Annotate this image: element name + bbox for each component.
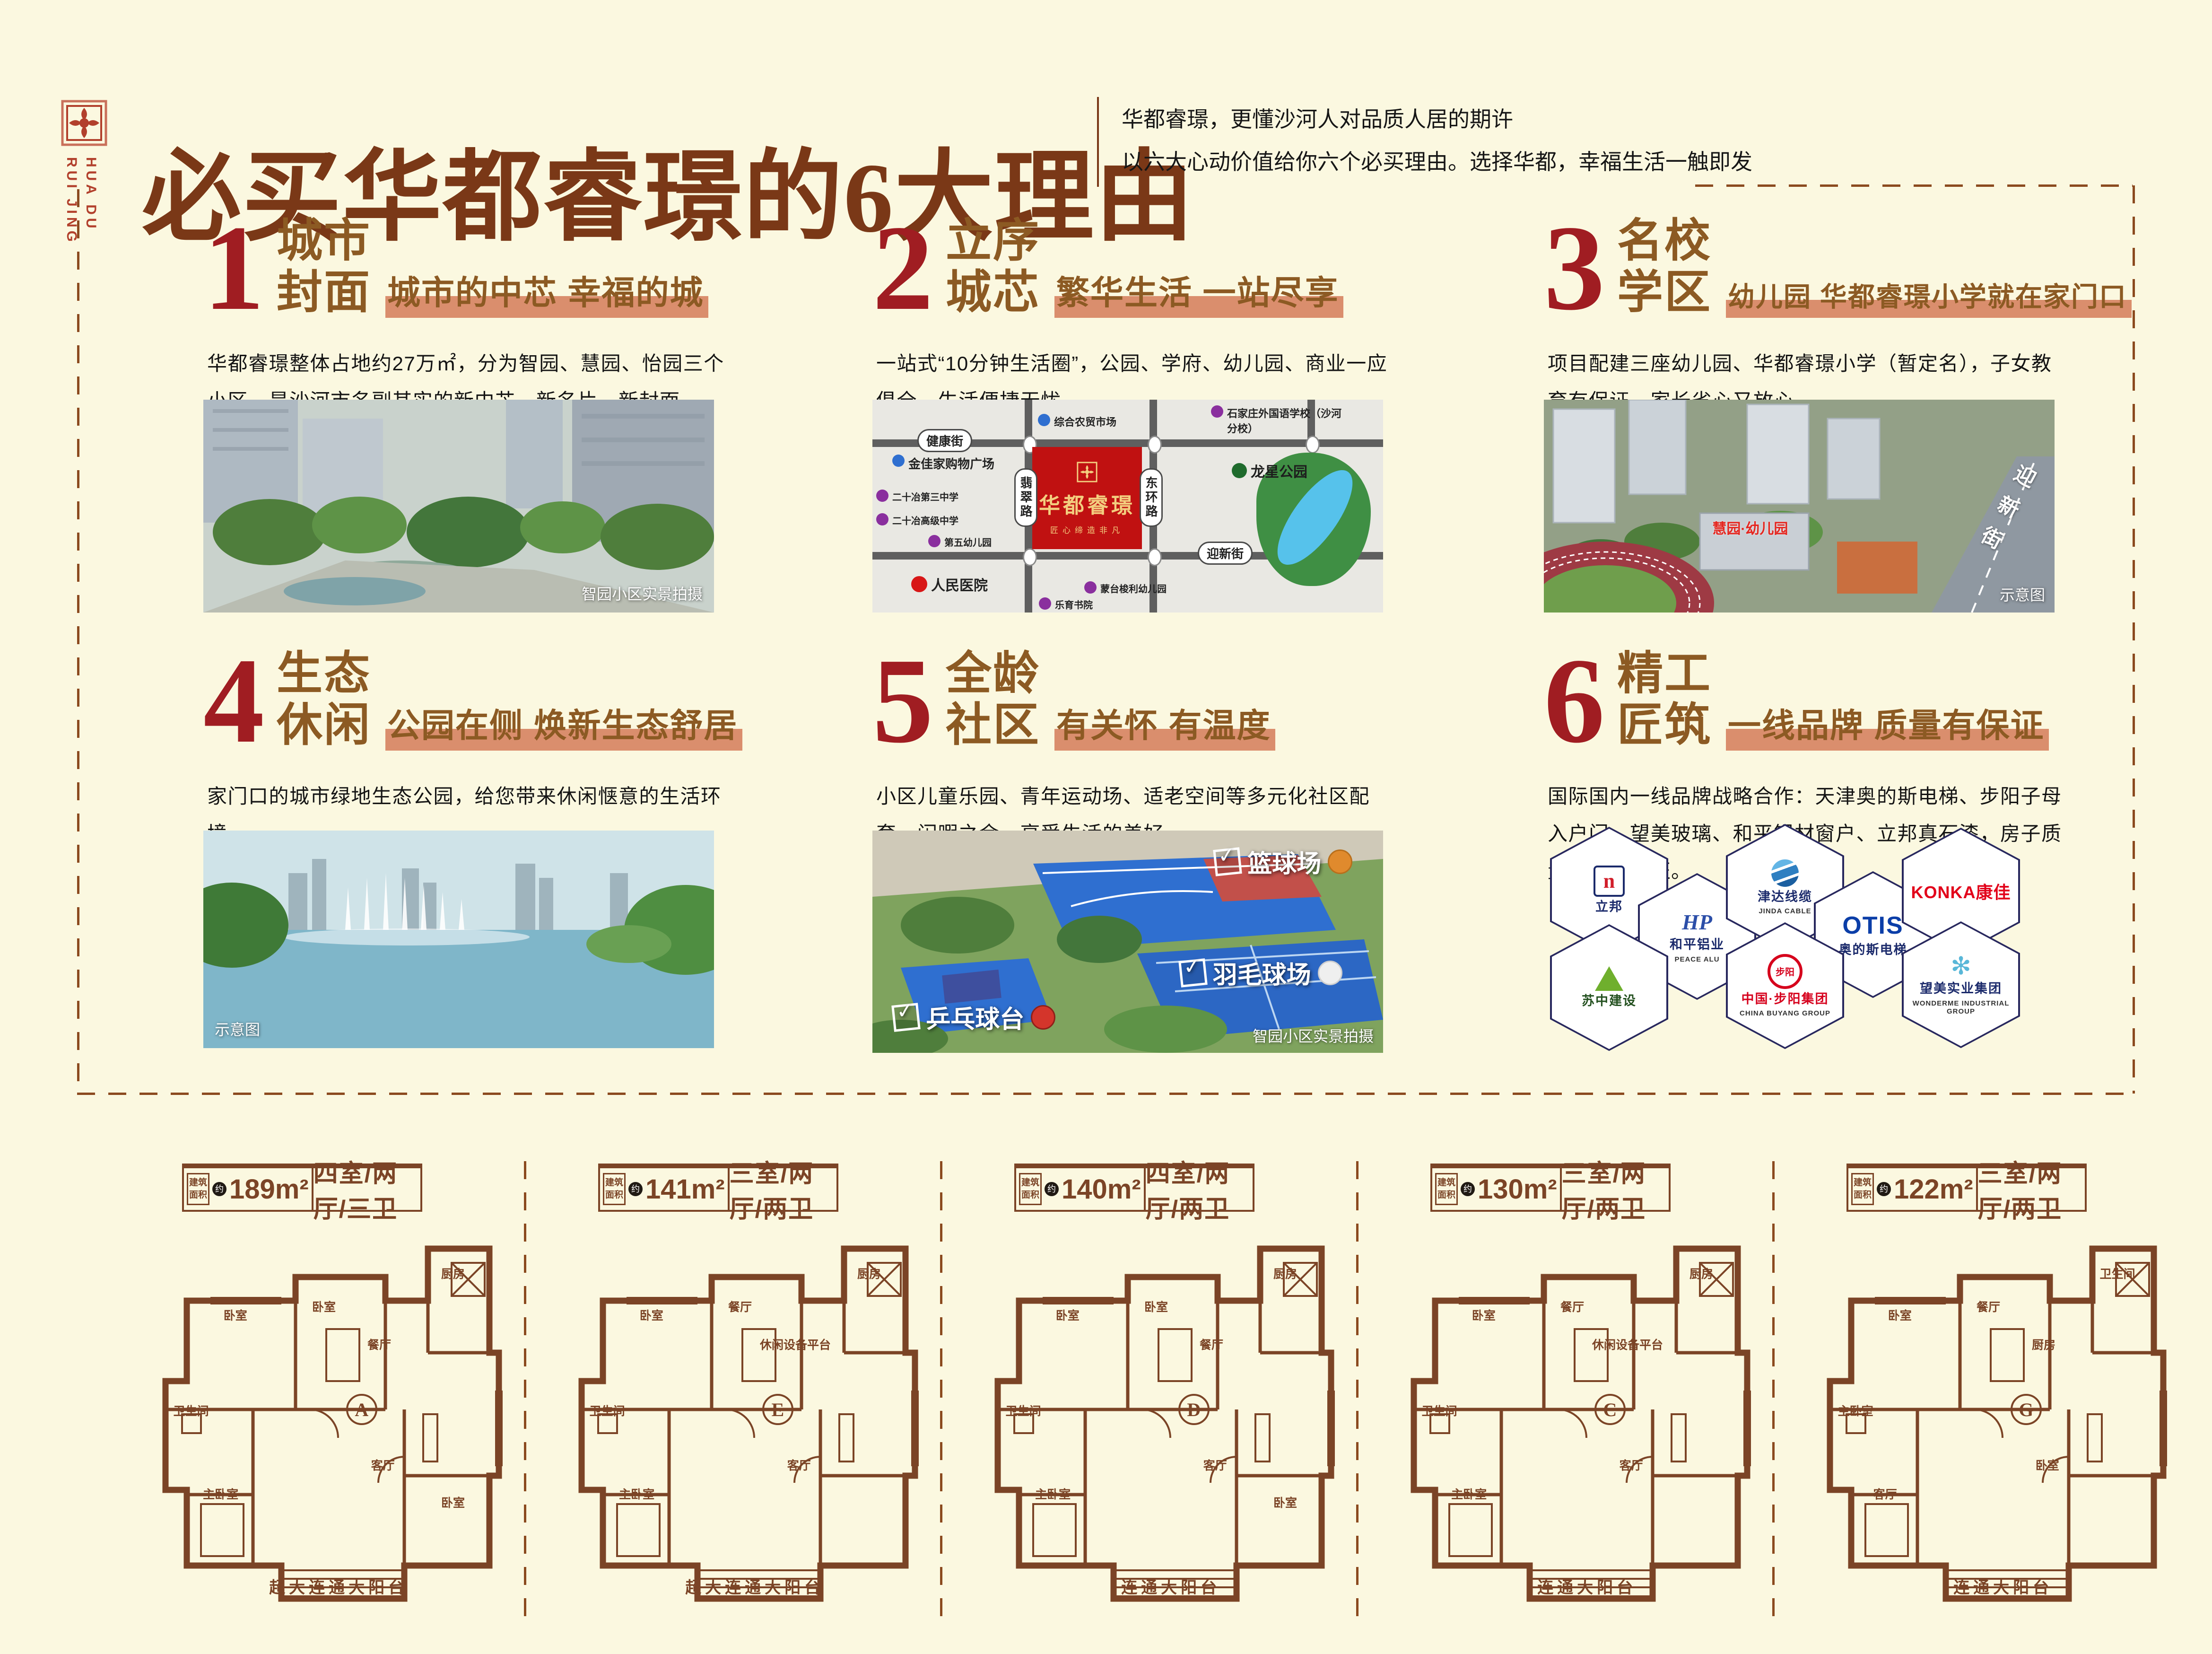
area-badge: 建筑面积 — [1435, 1173, 1458, 1205]
project-emblem-icon — [1076, 461, 1098, 483]
room-label: 餐厅 — [1200, 1336, 1223, 1353]
room-label: 卧室 — [1273, 1494, 1297, 1511]
plan-area: 130m² — [1478, 1173, 1557, 1205]
balcony-label: 连通大阳台 — [1953, 1575, 2053, 1598]
lake-illustration — [203, 831, 714, 1048]
section-heading: 社区 — [946, 700, 1040, 751]
room-label: 卫生间 — [590, 1402, 625, 1419]
plan-letter-badge: C — [1594, 1394, 1626, 1425]
room-label: 卧室 — [312, 1298, 336, 1315]
map-project-name: 华都睿璟 — [1039, 488, 1135, 519]
room-label: 厨房 — [2032, 1336, 2055, 1353]
map-intersection — [1306, 436, 1320, 454]
map-poi: 人民医院 — [911, 574, 988, 595]
plan-area: 122m² — [1894, 1173, 1973, 1205]
brand-buyang: 步阳 中国·步阳集团 CHINA BUYANG GROUP — [1726, 922, 1844, 1049]
poi-icon — [892, 455, 905, 467]
map-poi: 石家庄外国语学校（沙河分校） — [1211, 405, 1343, 436]
street-label-west: 翡翠路 — [1014, 468, 1037, 527]
title-divider — [1097, 97, 1099, 187]
photo-sports-courts: 篮球场 羽毛球场 乒乓球台 智园小区实景拍摄 — [872, 831, 1383, 1053]
street-label-east: 东环路 — [1140, 468, 1163, 527]
pingpong-icon — [1031, 1005, 1055, 1030]
court-label-pingpong: 乒乓球台 — [893, 999, 1055, 1035]
photo-school-aerial: 慧园·幼儿园 迎新街 示意图 — [1544, 400, 2055, 613]
floor-plan-189: 建筑面积 约 189m² 四室/两厅/三卫 卧室卧室餐厅厨房卫生间主卧室客厅卧室… — [135, 1154, 523, 1636]
poi-label: 石家庄外国语学校（沙河分校） — [1227, 405, 1343, 436]
plan-label: 建筑面积 约 140m² 四室/两厅/两卫 — [1014, 1164, 1254, 1212]
map-poi: 综合农贸市场 — [1038, 414, 1116, 429]
subtitle-line2: 以六大心动价值给你六个必买理由。选择华都，幸福生活一触即发 — [1122, 141, 1752, 184]
section-number: 6 — [1544, 651, 1605, 751]
section-tagline: 繁华生活 一站尽享 — [1054, 266, 1343, 318]
brand-suzhong: 苏中建设 — [1550, 924, 1668, 1051]
section-heading: 名校 — [1617, 215, 1712, 267]
poi-icon — [1038, 414, 1050, 426]
section-heading: 休闲 — [277, 700, 371, 751]
section-heading: 城芯 — [946, 267, 1040, 318]
area-badge: 建筑面积 — [1019, 1173, 1042, 1205]
room-label: 卧室 — [1056, 1306, 1080, 1323]
plan-label: 建筑面积 约 141m² 三室/两厅/两卫 — [598, 1164, 838, 1212]
plan-drawing: 卧室卧室餐厅厨房卫生间主卧室客厅卧室 A 超大连通大阳台 — [139, 1211, 508, 1627]
plan-layout: 四室/两厅/三卫 — [314, 1168, 420, 1210]
poi-label: 二十冶高级中学 — [892, 513, 958, 527]
section-number: 5 — [872, 651, 933, 751]
section-heading: 全龄 — [946, 648, 1040, 700]
park-tree-icon — [1232, 463, 1247, 478]
location-map: 华都睿璟 匠心缔造非凡 龙星公园 健康街 翡翠路 东环路 迎新街 综合农贸市场 … — [872, 400, 1383, 613]
room-label: 卧室 — [1888, 1306, 1912, 1323]
plan-layout: 三室/两厅/两卫 — [1562, 1168, 1669, 1210]
subtitle-line1: 华都睿璟，更懂沙河人对品质人居的期许 — [1122, 98, 1752, 141]
kindergarten-label: 慧园·幼儿园 — [1712, 517, 1788, 538]
room-label: 主卧室 — [203, 1485, 238, 1502]
basketball-icon — [1328, 849, 1352, 874]
plan-drawing: 卧室餐厅厨房卫生间主卧室客厅卧室 G 连通大阳台 — [1804, 1211, 2173, 1627]
floor-plan-130: 建筑面积 约 130m² 三室/两厅/两卫 卧室餐厅休闲设备平台厨房卫生间主卧室… — [1383, 1154, 1771, 1636]
checkbox-icon — [891, 1003, 921, 1032]
room-label: 卧室 — [640, 1306, 663, 1323]
plan-layout: 三室/两厅/两卫 — [730, 1168, 836, 1210]
section-tagline: 幼儿园 华都睿璟小学就在家门口 — [1726, 275, 2132, 318]
section-tagline: 城市的中芯 幸福的城 — [385, 266, 708, 318]
poi-label: 二十冶第三中学 — [892, 490, 958, 503]
map-poi: 二十冶第三中学 — [876, 490, 958, 503]
room-label: 卧室 — [441, 1494, 465, 1511]
plan-divider — [940, 1161, 942, 1625]
approx-icon: 约 — [1877, 1182, 1891, 1196]
floor-plan-122: 建筑面积 约 122m² 三室/两厅/两卫 卧室餐厅厨房卫生间主卧室客厅卧室 G… — [1799, 1154, 2187, 1636]
court-label-badminton: 羽毛球场 — [1180, 955, 1342, 990]
balcony-label: 连通大阳台 — [1121, 1575, 1220, 1598]
badminton-icon — [1318, 961, 1342, 985]
aerial-illustration — [1544, 400, 2055, 613]
section-heading: 封面 — [277, 267, 371, 318]
map-park-label: 龙星公园 — [1232, 460, 1307, 481]
room-label: 卫生间 — [1006, 1402, 1041, 1419]
plan-letter-badge: E — [762, 1394, 793, 1425]
dashed-border-right — [2133, 185, 2135, 1094]
room-label: 卧室 — [1472, 1306, 1496, 1323]
section-number: 3 — [1544, 218, 1605, 318]
map-poi: 二十冶高级中学 — [876, 513, 958, 527]
poi-icon — [1084, 581, 1097, 594]
section-number: 4 — [203, 651, 264, 751]
map-poi: 金佳家购物广场 — [892, 455, 994, 472]
checkbox-icon — [1213, 847, 1242, 876]
plan-letter-badge: G — [2011, 1394, 2042, 1425]
photo-caption: 示意图 — [215, 1018, 260, 1040]
courtyard-illustration — [203, 400, 714, 613]
nippon-logo-icon: n — [1594, 866, 1625, 897]
dashed-border-left — [77, 189, 79, 1094]
plan-divider — [1356, 1161, 1359, 1625]
room-label: 主卧室 — [1838, 1402, 1873, 1419]
section-2-city-core: 2 立序城芯 繁华生活 一站尽享 一站式“10分钟生活圈”，公园、学府、幼儿园、… — [872, 215, 1397, 420]
map-project-block: 华都睿璟 匠心缔造非凡 — [1032, 447, 1142, 549]
poi-icon — [1211, 405, 1223, 418]
room-label: 客厅 — [1203, 1456, 1227, 1473]
plan-drawing: 卧室卧室餐厅厨房卫生间主卧室客厅卧室 D 连通大阳台 — [972, 1211, 1341, 1627]
approx-icon: 约 — [1045, 1182, 1059, 1196]
room-label: 厨房 — [441, 1265, 465, 1282]
plan-label: 建筑面积 约 122m² 三室/两厅/两卫 — [1846, 1164, 2087, 1212]
poi-icon — [1039, 597, 1051, 610]
poi-icon — [876, 513, 888, 525]
section-tagline: 有关怀 有温度 — [1054, 699, 1275, 751]
plan-layout: 三室/两厅/两卫 — [1978, 1168, 2085, 1210]
wangmei-logo-icon: ✻ — [1951, 954, 1971, 979]
balcony-label: 超大连通大阳台 — [269, 1575, 408, 1598]
photo-courtyard: 智园小区实景拍摄 — [203, 400, 714, 613]
balcony-label: 超大连通大阳台 — [685, 1575, 824, 1598]
street-label-south: 迎新街 — [1198, 542, 1253, 565]
brand-logo-grid: n 立邦 HP 和平铝业 PEACE ALU 津达线缆 JINDA CABLE … — [1545, 824, 2070, 1054]
photo-park-lake: 示意图 — [203, 831, 714, 1048]
map-intersection — [1148, 548, 1162, 566]
map-project-slogan: 匠心缔造非凡 — [1050, 524, 1124, 535]
jinda-logo-icon — [1771, 859, 1799, 887]
poi-label: 蒙台梭利幼儿园 — [1100, 581, 1167, 595]
section-heading: 学区 — [1617, 267, 1712, 318]
brand-emblem-icon — [61, 99, 108, 147]
photo-caption: 智园小区实景拍摄 — [582, 582, 703, 604]
plan-area: 141m² — [645, 1173, 725, 1205]
section-number: 1 — [203, 218, 264, 318]
area-badge: 建筑面积 — [1851, 1173, 1874, 1205]
street-label-north: 健康街 — [917, 429, 972, 452]
room-label: 客厅 — [371, 1456, 395, 1473]
konka-logo-icon: KONKA康佳 — [1911, 879, 2011, 903]
room-label: 主卧室 — [1035, 1485, 1071, 1502]
map-poi: 第五幼儿园 — [928, 535, 992, 549]
court-label-basketball: 篮球场 — [1214, 844, 1352, 879]
floor-plan-140: 建筑面积 约 140m² 四室/两厅/两卫 卧室卧室餐厅厨房卫生间主卧室客厅卧室… — [967, 1154, 1355, 1636]
dashed-border-top — [1695, 184, 2133, 187]
subtitle: 华都睿璟，更懂沙河人对品质人居的期许 以六大心动价值给你六个必买理由。选择华都，… — [1122, 98, 1752, 183]
plan-layout: 四室/两厅/两卫 — [1146, 1168, 1253, 1210]
section-heading: 城市 — [277, 215, 371, 267]
room-label: 休闲设备平台 — [760, 1336, 831, 1353]
plan-drawing: 卧室餐厅休闲设备平台厨房卫生间主卧室客厅 E 超大连通大阳台 — [556, 1211, 924, 1627]
room-label: 餐厅 — [1560, 1298, 1584, 1315]
map-poi: 乐育书院 — [1039, 597, 1093, 611]
plan-letter-badge: A — [346, 1394, 377, 1425]
poi-label: 第五幼儿园 — [944, 535, 992, 549]
room-label: 卧室 — [2036, 1456, 2059, 1473]
peace-alu-logo-icon: HP — [1682, 910, 1712, 935]
map-intersection — [1148, 436, 1162, 454]
room-label: 客厅 — [787, 1456, 811, 1473]
room-label: 客厅 — [1620, 1456, 1643, 1473]
plan-letter-badge: D — [1178, 1394, 1210, 1425]
poi-label: 人民医院 — [931, 574, 988, 595]
checkbox-icon — [1178, 958, 1208, 988]
floor-plan-141: 建筑面积 约 141m² 三室/两厅/两卫 卧室餐厅休闲设备平台厨房卫生间主卧室… — [551, 1154, 939, 1636]
section-3-school-district: 3 名校学区 幼儿园 华都睿璟小学就在家门口 项目配建三座幼儿园、华都睿璟小学（… — [1544, 215, 2069, 420]
photo-caption: 示意图 — [2000, 583, 2045, 605]
plan-divider — [524, 1161, 526, 1625]
room-label: 卫生间 — [2099, 1265, 2135, 1282]
room-label: 餐厅 — [367, 1336, 391, 1353]
room-label: 卫生间 — [1422, 1402, 1457, 1419]
section-5-community: 5 全龄社区 有关怀 有温度 小区儿童乐园、青年运动场、适老空间等多元化社区配套… — [872, 648, 1397, 853]
poi-icon — [928, 535, 941, 547]
section-heading: 生态 — [277, 648, 371, 700]
area-badge: 建筑面积 — [603, 1173, 626, 1205]
room-label: 餐厅 — [1977, 1298, 2000, 1315]
brand-name-en: HUA DURUI JING — [62, 157, 100, 245]
map-poi: 蒙台梭利幼儿园 — [1084, 581, 1167, 595]
section-heading: 匠筑 — [1617, 700, 1712, 751]
section-heading: 立序 — [946, 215, 1040, 267]
approx-icon: 约 — [212, 1182, 226, 1196]
section-number: 2 — [872, 218, 933, 318]
otis-logo-icon: OTIS — [1842, 911, 1903, 940]
plan-label: 建筑面积 约 189m² 四室/两厅/三卫 — [182, 1164, 422, 1212]
approx-icon: 约 — [1461, 1182, 1475, 1196]
plan-drawing: 卧室餐厅休闲设备平台厨房卫生间主卧室客厅 C 连通大阳台 — [1388, 1211, 1757, 1627]
poster: HUA DURUI JING 必买华都睿璟的6大理由 华都睿璟，更懂沙河人对品质… — [0, 0, 2212, 1654]
section-tagline: 公园在侧 焕新生态舒居 — [385, 699, 742, 751]
map-intersection — [1023, 548, 1037, 566]
photo-caption: 智园小区实景拍摄 — [1253, 1024, 1374, 1046]
room-label: 厨房 — [1689, 1265, 1713, 1282]
poi-label: 乐育书院 — [1055, 597, 1093, 611]
poi-icon — [911, 576, 927, 592]
plan-area: 140m² — [1062, 1173, 1141, 1205]
poi-label: 金佳家购物广场 — [908, 455, 994, 472]
poi-label: 综合农贸市场 — [1054, 414, 1116, 429]
section-4-ecology: 4 生态休闲 公园在侧 焕新生态舒居 家门口的城市绿地生态公园，给您带来休闲惬意… — [203, 648, 728, 853]
poi-icon — [876, 490, 888, 502]
plan-divider — [1772, 1161, 1775, 1625]
room-label: 餐厅 — [728, 1298, 752, 1315]
area-badge: 建筑面积 — [187, 1173, 209, 1205]
approx-icon: 约 — [628, 1182, 643, 1196]
room-label: 客厅 — [1873, 1485, 1897, 1502]
section-1-city-cover: 1 城市封面 城市的中芯 幸福的城 华都睿璟整体占地约27万㎡，分为智园、慧园、… — [203, 215, 728, 420]
room-label: 卫生间 — [174, 1402, 209, 1419]
plan-area: 189m² — [229, 1173, 309, 1205]
room-label: 厨房 — [1273, 1265, 1297, 1282]
room-label: 卧室 — [224, 1306, 247, 1323]
brand-wangmei: ✻ 望美实业集团 WONDERME INDUSTRIAL GROUP — [1902, 921, 2020, 1048]
section-tagline: 一线品牌 质量有保证 — [1726, 699, 2049, 751]
room-label: 卧室 — [1144, 1298, 1168, 1315]
section-heading: 精工 — [1617, 648, 1712, 700]
plan-label: 建筑面积 约 130m² 三室/两厅/两卫 — [1430, 1164, 1671, 1212]
dashed-border-bottom — [77, 1093, 2135, 1095]
room-label: 主卧室 — [619, 1485, 654, 1502]
room-label: 厨房 — [857, 1265, 881, 1282]
room-label: 主卧室 — [1451, 1485, 1487, 1502]
suzhong-logo-icon — [1595, 966, 1623, 991]
balcony-label: 连通大阳台 — [1537, 1575, 1637, 1598]
room-label: 休闲设备平台 — [1592, 1336, 1663, 1353]
buyang-logo-icon: 步阳 — [1768, 954, 1803, 989]
